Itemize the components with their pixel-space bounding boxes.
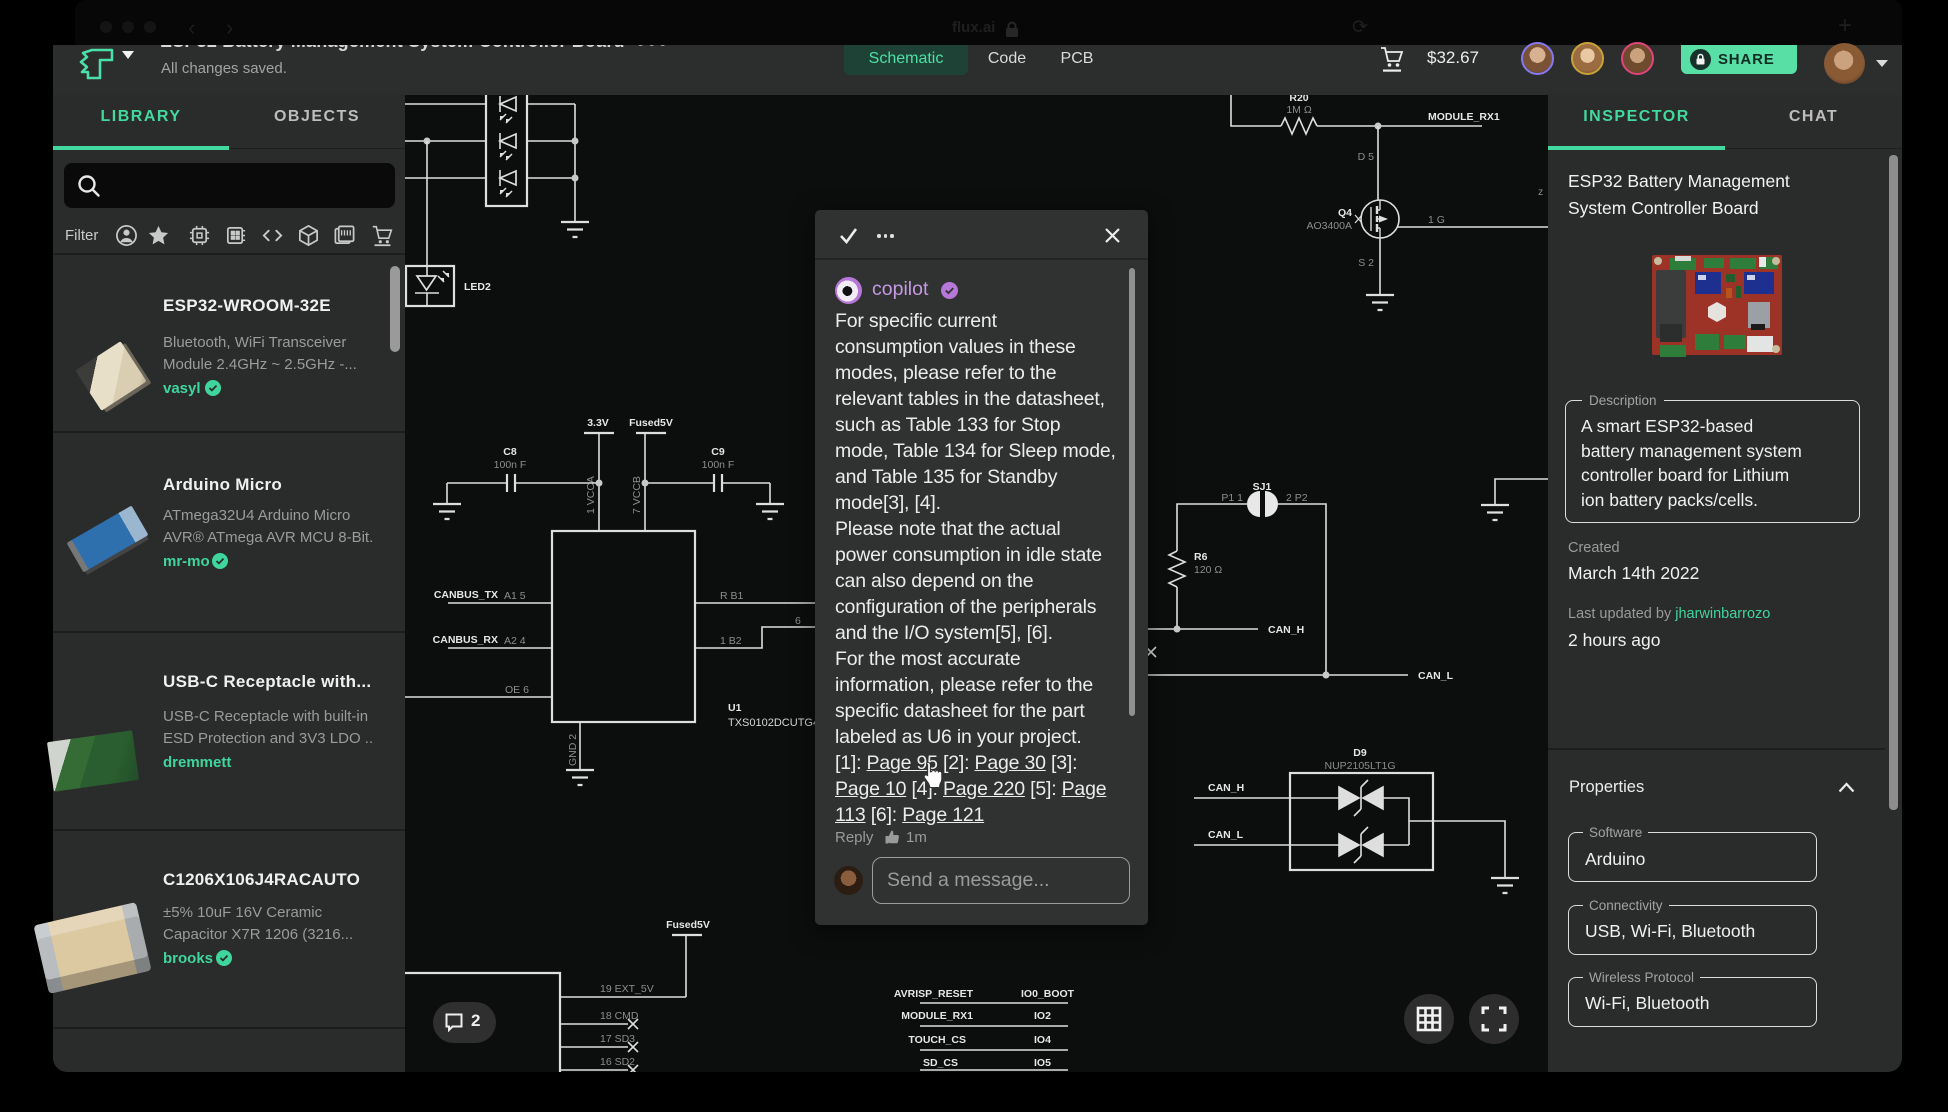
- svg-text:1M Ω: 1M Ω: [1286, 104, 1312, 116]
- svg-text:NUP2105LT1G: NUP2105LT1G: [1324, 760, 1395, 772]
- svg-text:100n F: 100n F: [494, 459, 527, 471]
- svg-text:IO2: IO2: [1034, 1010, 1051, 1022]
- svg-text:R6: R6: [1194, 551, 1208, 563]
- svg-text:C8: C8: [503, 446, 517, 458]
- svg-text:CAN_H: CAN_H: [1268, 624, 1304, 636]
- svg-text:LED2: LED2: [464, 281, 491, 293]
- svg-text:CAN_L: CAN_L: [1208, 829, 1244, 841]
- svg-text:1 VCCA: 1 VCCA: [585, 476, 597, 514]
- svg-text:C9: C9: [711, 446, 725, 458]
- svg-text:CAN_H: CAN_H: [1208, 782, 1244, 794]
- svg-text:D 5: D 5: [1358, 151, 1375, 163]
- svg-text:IO5: IO5: [1034, 1057, 1051, 1069]
- svg-text:3.3V: 3.3V: [587, 417, 609, 429]
- svg-text:7 VCCB: 7 VCCB: [631, 476, 643, 514]
- svg-text:R B1: R B1: [720, 590, 744, 602]
- svg-text:100n F: 100n F: [702, 459, 735, 471]
- svg-text:AVRISP_RESET: AVRISP_RESET: [894, 988, 974, 1000]
- svg-text:D9: D9: [1353, 747, 1367, 759]
- svg-text:R20: R20: [1289, 95, 1308, 104]
- svg-text:S 2: S 2: [1358, 257, 1374, 269]
- svg-text:z: z: [1538, 186, 1543, 198]
- svg-text:Fused5V: Fused5V: [629, 417, 673, 429]
- svg-text:CANBUS_RX: CANBUS_RX: [433, 634, 498, 646]
- svg-text:OE 6: OE 6: [505, 684, 529, 696]
- svg-text:2 P2: 2 P2: [1286, 492, 1308, 504]
- svg-text:1 B2: 1 B2: [720, 635, 742, 647]
- svg-text:U1: U1: [728, 702, 742, 714]
- svg-text:Fused5V: Fused5V: [666, 919, 710, 931]
- svg-text:19 EXT_5V: 19 EXT_5V: [600, 983, 654, 995]
- svg-text:120 Ω: 120 Ω: [1194, 564, 1222, 576]
- svg-text:SJ1: SJ1: [1253, 481, 1272, 493]
- svg-text:A1 5: A1 5: [504, 590, 526, 602]
- svg-text:MODULE_RX1: MODULE_RX1: [1428, 111, 1500, 123]
- svg-text:GND 2: GND 2: [567, 734, 579, 766]
- svg-text:SD_CS: SD_CS: [923, 1057, 958, 1069]
- svg-text:MODULE_RX1: MODULE_RX1: [901, 1010, 973, 1022]
- svg-text:AO3400A: AO3400A: [1306, 220, 1352, 232]
- svg-text:CANBUS_TX: CANBUS_TX: [434, 589, 498, 601]
- svg-text:IO4: IO4: [1034, 1034, 1051, 1046]
- svg-text:6: 6: [795, 615, 801, 627]
- svg-text:Q4: Q4: [1338, 207, 1352, 219]
- svg-text:1 G: 1 G: [1428, 214, 1445, 226]
- svg-text:IO0_BOOT: IO0_BOOT: [1021, 988, 1075, 1000]
- svg-text:18 CMD: 18 CMD: [600, 1010, 639, 1022]
- svg-text:P1 1: P1 1: [1221, 492, 1243, 504]
- svg-text:TXS0102DCUTG4: TXS0102DCUTG4: [728, 717, 819, 729]
- svg-text:A2 4: A2 4: [504, 635, 526, 647]
- svg-text:CAN_L: CAN_L: [1418, 670, 1454, 682]
- svg-text:TOUCH_CS: TOUCH_CS: [908, 1034, 966, 1046]
